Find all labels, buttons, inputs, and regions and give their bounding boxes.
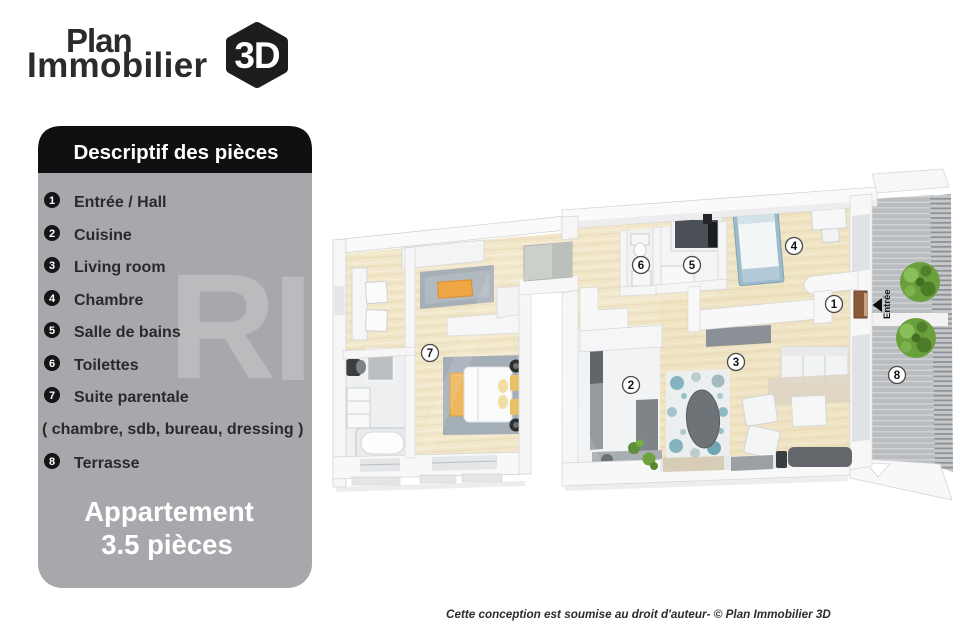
svg-text:Appartement: Appartement (84, 496, 254, 527)
svg-text:Entrée: Entrée (882, 289, 893, 319)
svg-text:8: 8 (894, 370, 901, 382)
svg-text:3.5 pièces: 3.5 pièces (101, 529, 232, 560)
svg-text:( chambre, sdb, bureau, dressi: ( chambre, sdb, bureau, dressing ) (42, 421, 303, 438)
svg-text:Suite parentale: Suite parentale (74, 389, 189, 406)
svg-text:8: 8 (49, 456, 55, 468)
svg-text:5: 5 (49, 325, 55, 337)
svg-text:7: 7 (49, 390, 55, 402)
svg-text:5: 5 (689, 260, 696, 272)
svg-text:Salle de bains: Salle de bains (74, 324, 181, 341)
svg-text:Cuisine: Cuisine (74, 227, 132, 244)
svg-text:6: 6 (638, 260, 644, 272)
svg-text:R: R (168, 242, 276, 410)
svg-text:Entrée / Hall: Entrée / Hall (74, 194, 166, 211)
svg-text:Chambre: Chambre (74, 292, 143, 309)
svg-text:1: 1 (49, 195, 55, 207)
svg-text:I: I (272, 244, 314, 412)
svg-text:4: 4 (791, 241, 798, 253)
svg-text:2: 2 (628, 380, 634, 392)
svg-text:3: 3 (49, 260, 55, 272)
svg-text:6: 6 (49, 358, 55, 370)
svg-text:Terrasse: Terrasse (74, 455, 140, 472)
svg-text:3: 3 (733, 357, 739, 369)
svg-text:4: 4 (49, 293, 56, 305)
svg-text:2: 2 (49, 228, 55, 240)
svg-text:Toilettes: Toilettes (74, 357, 139, 374)
svg-text:Descriptif des pièces: Descriptif des pièces (73, 141, 278, 164)
svg-text:7: 7 (427, 348, 433, 360)
svg-text:1: 1 (831, 299, 838, 311)
svg-text:3D: 3D (234, 35, 280, 76)
svg-text:Cette conception est soumise a: Cette conception est soumise au droit d'… (446, 608, 831, 621)
svg-text:Living room: Living room (74, 259, 166, 276)
svg-text:Immobilier: Immobilier (27, 46, 208, 85)
